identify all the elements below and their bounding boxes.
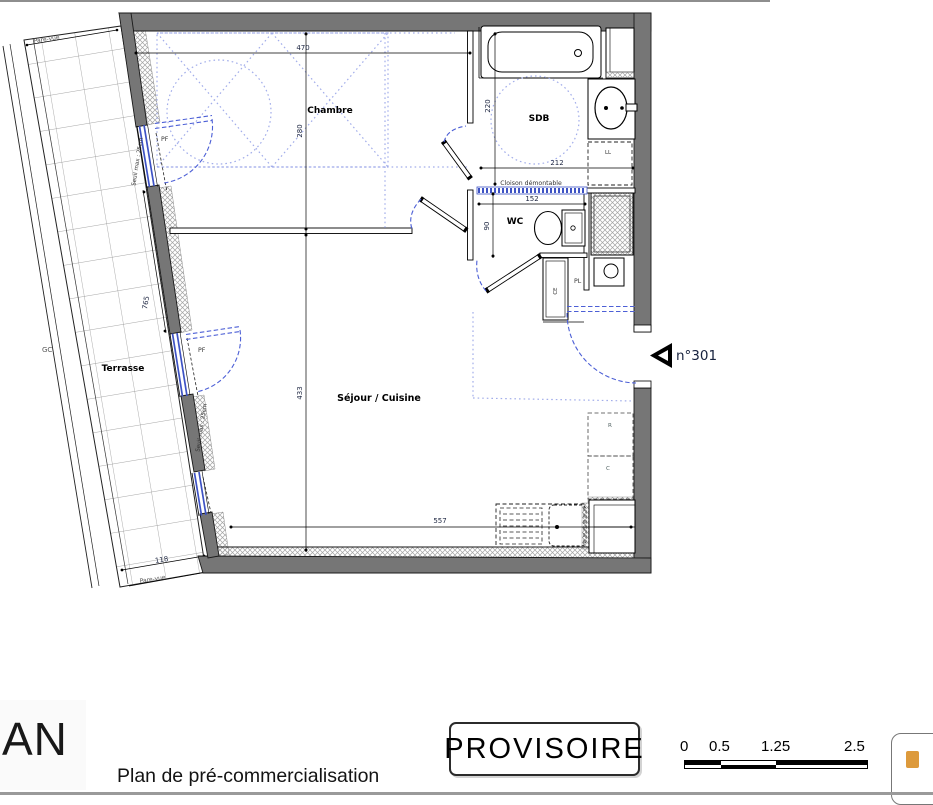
scale-label-25: 2.5 [844,738,865,755]
brand-logo: AN [2,712,68,766]
dim-sdb-depth: 220 [484,99,492,112]
label-gc: GC [42,346,52,354]
scale-label-0: 0 [680,738,688,755]
label-pf2: PF [198,347,206,354]
label-pl: PL [574,278,582,285]
kitchen-counter-corner [589,500,635,553]
scale-label-05: 0.5 [709,738,730,755]
room-label-sejour: Séjour / Cuisine [337,393,421,404]
exterior-walls [119,13,651,573]
label-cloison: Cloison démontable [500,179,562,187]
room-label-terrasse: Terrasse [102,364,145,374]
dim-sdb-width: 212 [550,159,563,167]
room-label-wc: WC [507,217,524,227]
plan-subtitle: Plan de pré-commercialisation [117,765,379,788]
duct-top-right [606,28,634,78]
door-sdb [441,126,473,180]
duct-hall [591,193,633,255]
kitchen-counter-dashed [496,504,586,547]
door-entrance [567,307,636,384]
dim-wc-depth: 90 [483,222,491,231]
unit-marker: n°301 [650,343,717,368]
dim-chambre-depth: 280 [296,124,304,137]
door-chambre [411,196,469,233]
room-label-sdb: SDB [529,114,550,124]
hall-fixture [594,258,624,286]
floor-plan: 470 280 220 212 152 90 433 557 765 118 C… [0,0,933,690]
bathtub [481,26,601,78]
label-cooker: C [606,466,610,472]
label-ll: LL [605,150,611,156]
scale-bar: 0 0.5 1.25 2.5 [684,738,868,770]
label-ce: CE [553,287,559,295]
washing-machine [588,142,632,185]
sink-vanity [588,79,637,139]
page-border-bottom [0,792,933,795]
room-label-chambre: Chambre [307,106,352,116]
provisoire-stamp: PROVISOIRE [449,722,640,776]
unit-number: n°301 [676,348,717,364]
door-wc [477,253,543,293]
scale-bar-rule [684,760,868,769]
scale-label-125: 1.25 [761,738,790,755]
label-pf1: PF [161,136,169,143]
corner-logo-glyph [906,751,919,768]
toilet [535,210,586,246]
dim-wc-width: 152 [525,195,538,203]
door-pf2-swing [186,327,241,393]
dim-sejour-depth: 433 [296,386,304,399]
dim-chambre-width: 470 [296,44,309,52]
dim-sejour-width: 557 [433,517,446,525]
label-refrigerator: R [608,423,612,429]
